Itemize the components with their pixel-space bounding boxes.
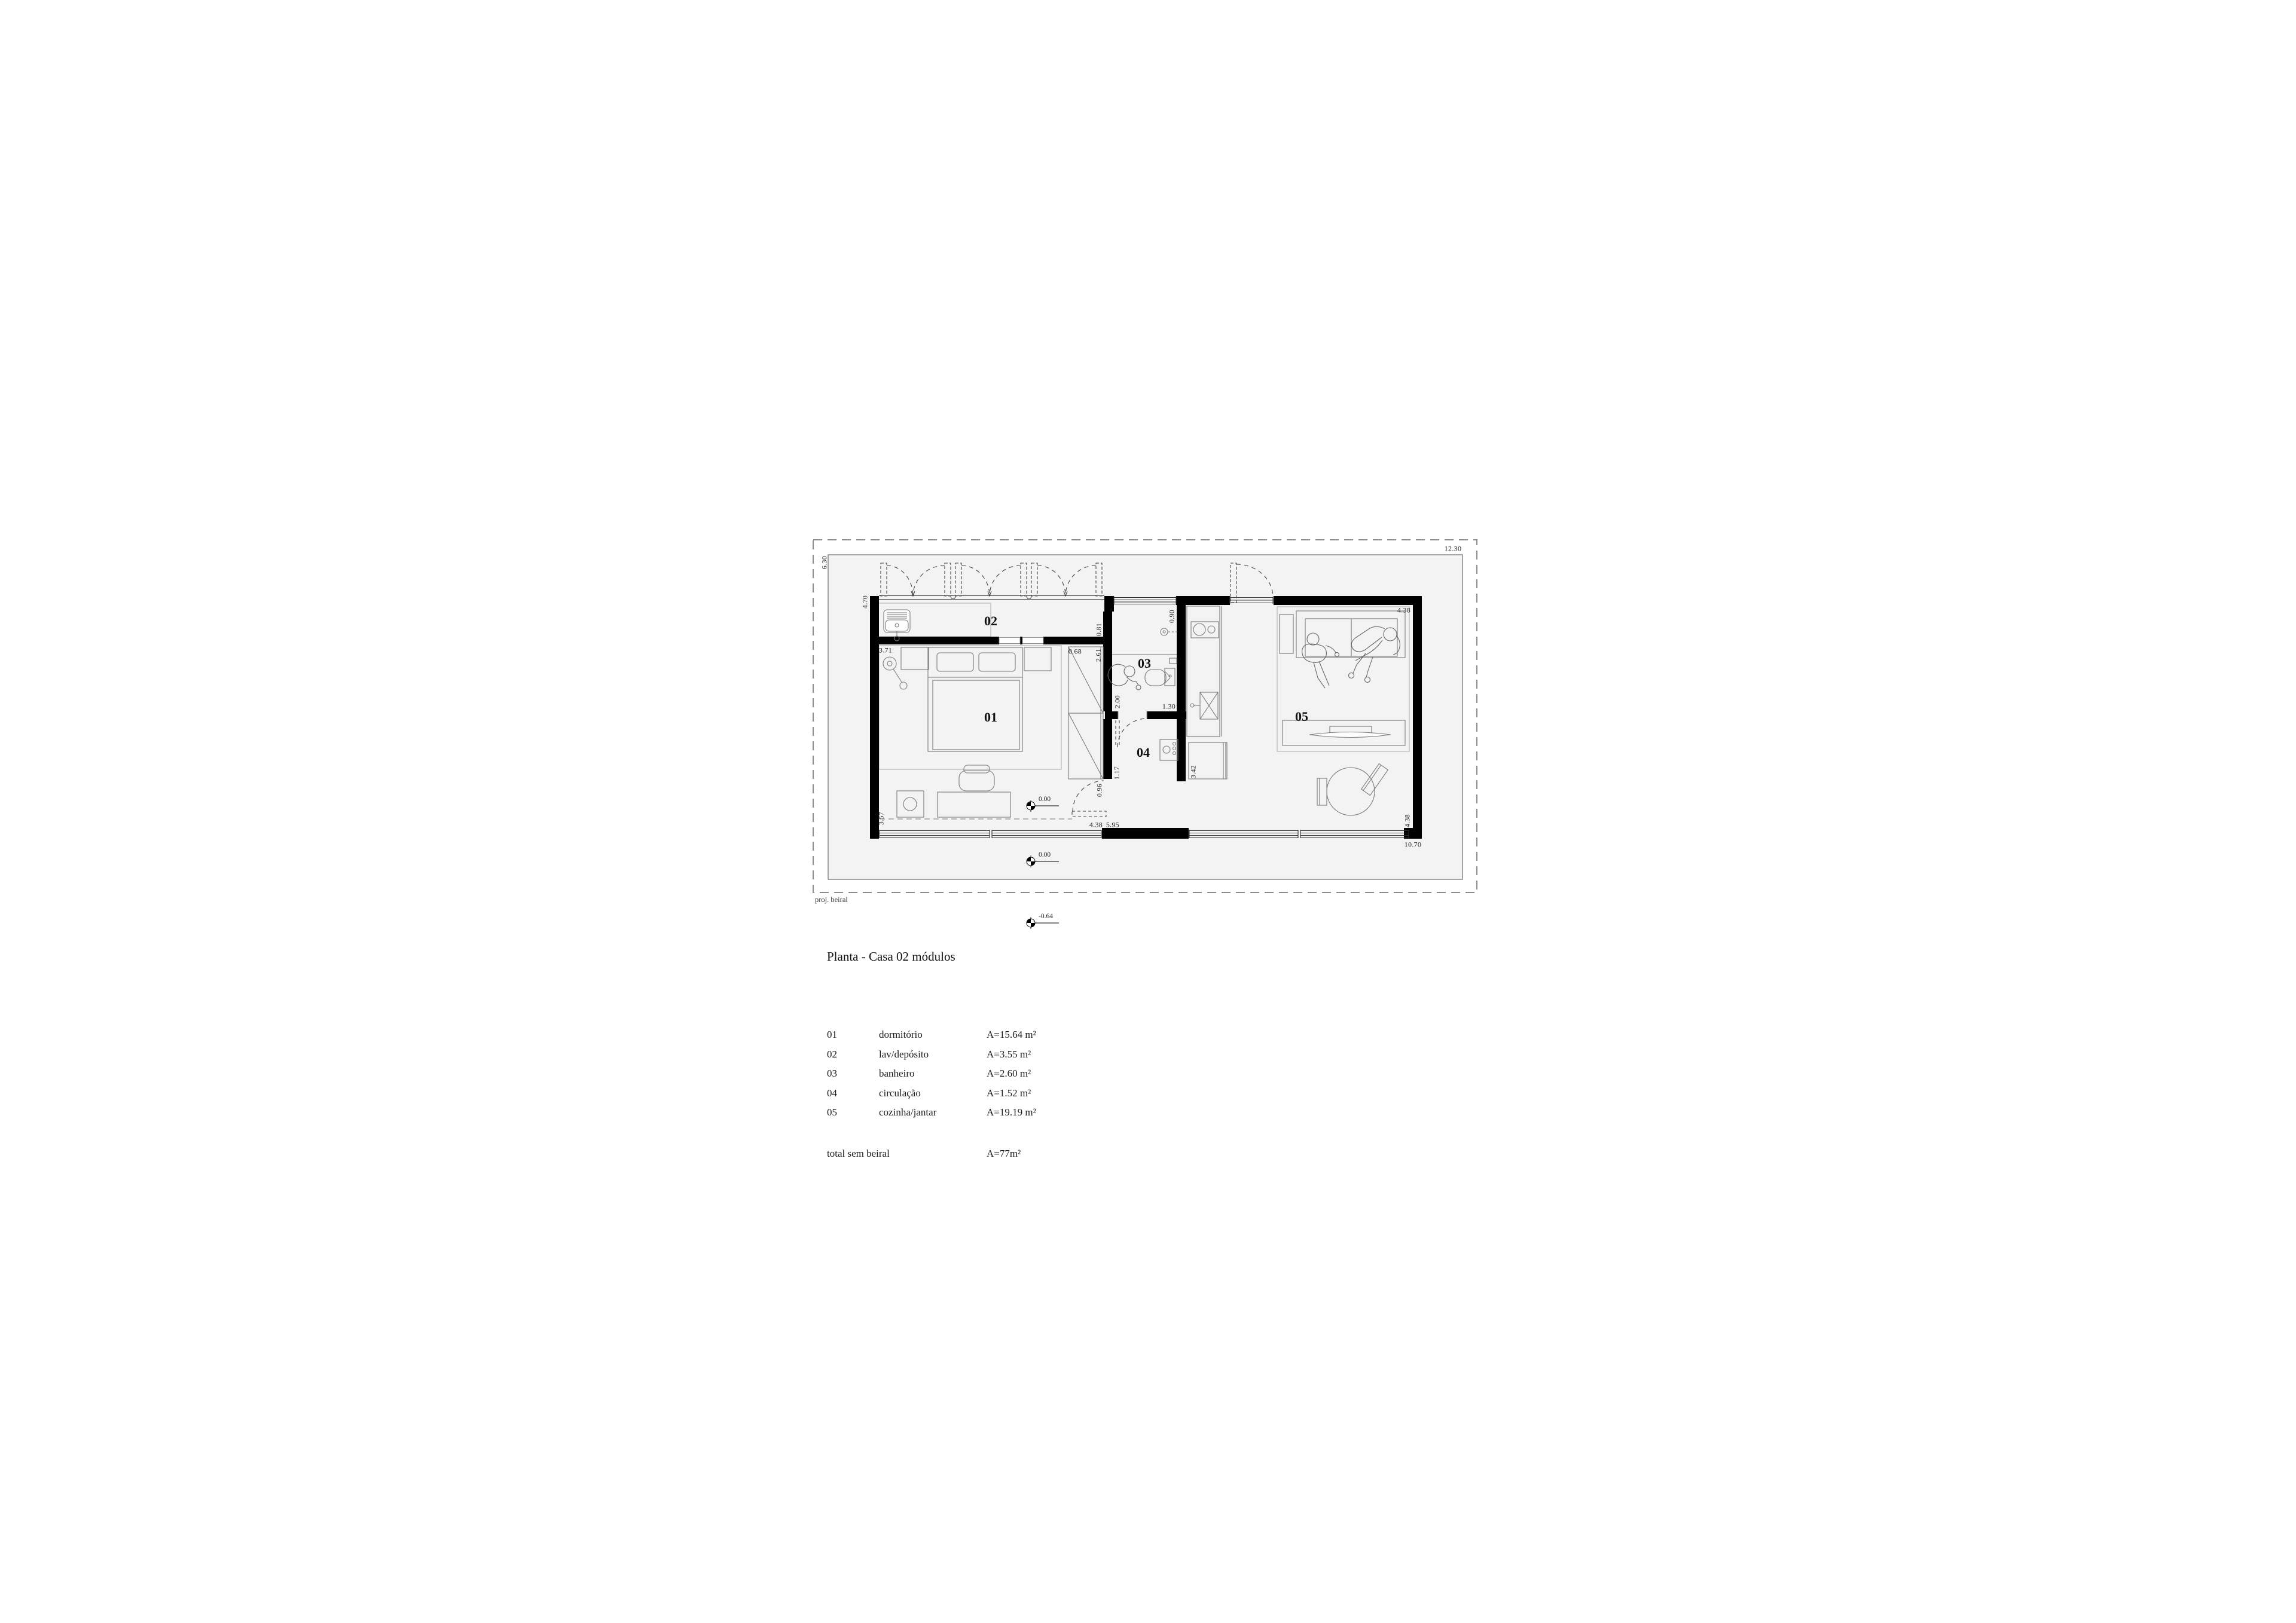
dimension-label: 3.42 xyxy=(1189,765,1198,778)
dimension-label: 12.30 xyxy=(1445,545,1462,554)
legend-row: 05 cozinha/jantar A=19.19 m² xyxy=(827,1103,1036,1123)
legend-room-number: 03 xyxy=(827,1068,879,1080)
drawing-title: Planta - Casa 02 módulos xyxy=(827,949,955,964)
dimension-label: 4.38 xyxy=(1089,821,1103,830)
legend-room-number: 04 xyxy=(827,1087,879,1099)
drawing-sheet: 12.306.304.703.710.680.812.610.902.001.3… xyxy=(0,0,2296,1623)
dimension-label: 4.70 xyxy=(861,595,870,609)
room-number-label: 04 xyxy=(1137,745,1150,760)
legend-row: 01 dormitório A=15.64 m² xyxy=(827,1025,1036,1045)
dimension-label: 4.38 xyxy=(1397,606,1410,615)
legend-room-number: 05 xyxy=(827,1107,879,1118)
dimension-label: 3.57 xyxy=(877,812,886,825)
legend-total-label: total sem beiral xyxy=(827,1148,987,1160)
legend-room-number: 01 xyxy=(827,1029,879,1041)
legend-row: 04 circulação A=1.52 m² xyxy=(827,1084,1036,1104)
room-number-label: 05 xyxy=(1295,709,1308,725)
dimension-label: 2.61 xyxy=(1094,649,1103,662)
dimension-label: 4.38 xyxy=(1403,814,1412,827)
legend-room-number: 02 xyxy=(827,1049,879,1060)
elevation-marker-label: -0.64 xyxy=(1039,913,1053,920)
legend-room-area: A=15.64 m² xyxy=(987,1029,1036,1041)
legend-room-area: A=3.55 m² xyxy=(987,1049,1036,1060)
dimension-label: 1.17 xyxy=(1113,766,1122,780)
legend-total-area: A=77m² xyxy=(987,1148,1021,1160)
area-legend: 01 dormitório A=15.64 m² 02 lav/depósito… xyxy=(827,1025,1036,1123)
legend-room-area: A=2.60 m² xyxy=(987,1068,1036,1080)
legend-room-name: lav/depósito xyxy=(879,1049,987,1060)
dimension-label: 0.96 xyxy=(1095,784,1104,797)
legend-room-area: A=19.19 m² xyxy=(987,1107,1036,1118)
legend-room-name: cozinha/jantar xyxy=(879,1107,987,1118)
elevation-marker-label: 0.00 xyxy=(1039,796,1051,803)
dimension-label: 0.68 xyxy=(1068,647,1082,656)
dimension-label: 6.30 xyxy=(820,556,829,569)
legend-room-name: dormitório xyxy=(879,1029,987,1041)
legend-room-area: A=1.52 m² xyxy=(987,1087,1036,1099)
dimension-label: 5.95 xyxy=(1106,821,1119,830)
dimension-label: 3.71 xyxy=(879,646,892,655)
legend-row: 02 lav/depósito A=3.55 m² xyxy=(827,1045,1036,1065)
floor-plan xyxy=(807,532,1513,939)
dimension-label: 0.81 xyxy=(1095,623,1104,636)
elevation-marker-label: 0.00 xyxy=(1039,851,1051,858)
legend-total-row: total sem beiral A=77m² xyxy=(827,1144,1021,1163)
dimension-label: 2.00 xyxy=(1113,695,1122,708)
dimension-label: 1.30 xyxy=(1162,702,1176,711)
room-number-label: 01 xyxy=(984,710,997,725)
room-number-label: 03 xyxy=(1138,656,1151,671)
legend-room-name: banheiro xyxy=(879,1068,987,1080)
legend-row: 03 banheiro A=2.60 m² xyxy=(827,1064,1036,1084)
dimension-label: 0.90 xyxy=(1168,610,1177,623)
roof-projection-label: proj. beiral xyxy=(815,895,848,904)
legend-room-name: circulação xyxy=(879,1087,987,1099)
dimension-label: 10.70 xyxy=(1405,840,1422,849)
room-number-label: 02 xyxy=(984,613,997,629)
